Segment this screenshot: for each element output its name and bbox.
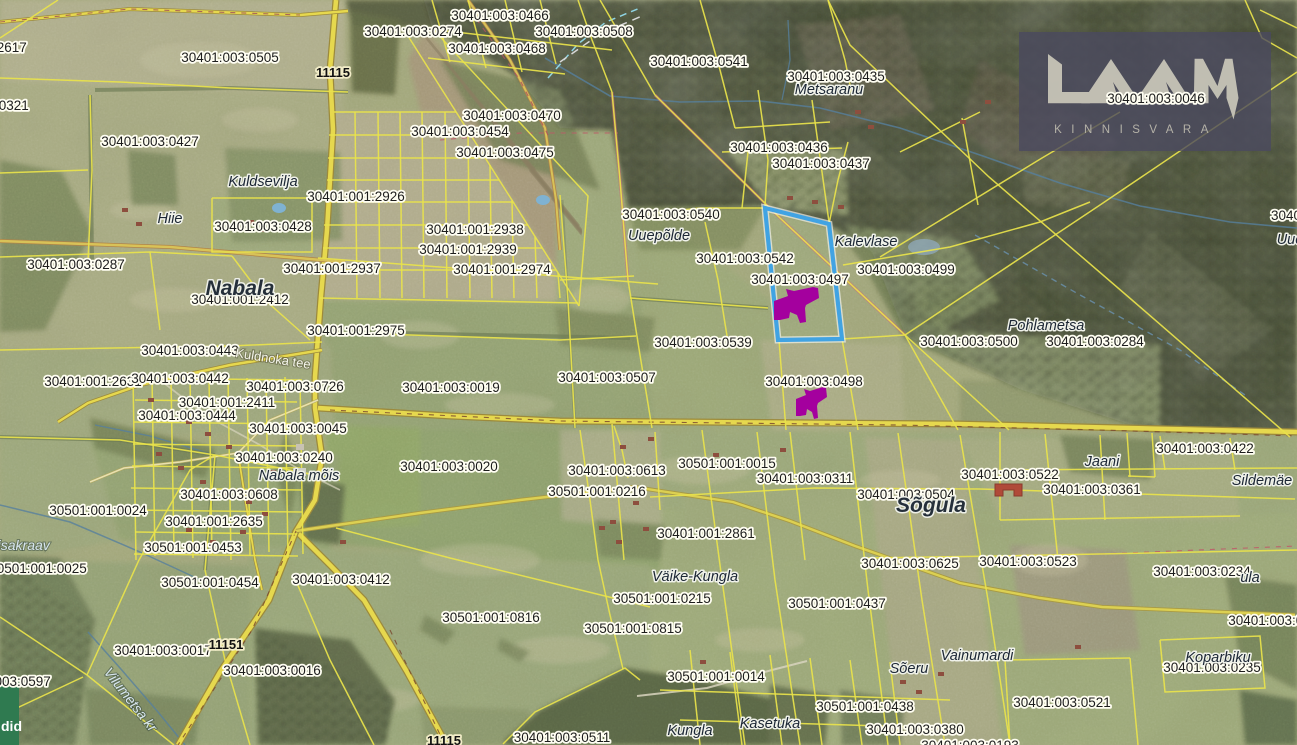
- svg-text:Hiie: Hiie: [158, 211, 183, 227]
- svg-text:30501:001:0815: 30501:001:0815: [584, 621, 682, 636]
- svg-text:30401:001:2617: 30401:001:2617: [0, 40, 27, 55]
- svg-text:30401:003:0019: 30401:003:0019: [402, 380, 500, 395]
- svg-text:30401:003:0597: 30401:003:0597: [0, 674, 51, 689]
- svg-text:30501:001:0014: 30501:001:0014: [667, 669, 765, 684]
- svg-text:30401:003:0380: 30401:003:0380: [866, 722, 964, 737]
- svg-text:Jaani: Jaani: [1084, 454, 1120, 470]
- svg-text:Vainumardi: Vainumardi: [941, 648, 1015, 664]
- svg-text:30401:003:0498: 30401:003:0498: [765, 374, 863, 389]
- svg-text:Kalevlase: Kalevlase: [835, 234, 898, 250]
- svg-text:30401:003:0236: 30401:003:0236: [1228, 613, 1297, 628]
- svg-text:3040: 3040: [1271, 208, 1297, 223]
- svg-text:30501:001:0216: 30501:001:0216: [548, 484, 646, 499]
- svg-text:30401:003:0017: 30401:003:0017: [114, 643, 212, 658]
- svg-text:Metsaranu: Metsaranu: [795, 82, 864, 98]
- svg-text:Uuepõlde: Uuepõlde: [628, 228, 690, 244]
- svg-text:30401:003:0311: 30401:003:0311: [757, 471, 854, 486]
- svg-text:Sõeru: Sõeru: [890, 661, 929, 677]
- svg-text:Kuldsevilja: Kuldsevilja: [228, 174, 297, 190]
- svg-text:30401:003:0284: 30401:003:0284: [1046, 334, 1144, 349]
- svg-text:30401:001:2938: 30401:001:2938: [426, 222, 524, 237]
- svg-text:KINNISVARA: KINNISVARA: [1054, 124, 1218, 136]
- svg-text:30401:003:0542: 30401:003:0542: [696, 251, 794, 266]
- svg-text:30401:003:0521: 30401:003:0521: [1013, 695, 1111, 710]
- svg-text:30401:003:0443: 30401:003:0443: [141, 343, 239, 358]
- svg-text:30401:003:0541: 30401:003:0541: [650, 54, 748, 69]
- svg-text:30401:003:0522: 30401:003:0522: [961, 467, 1059, 482]
- svg-text:Väike-Kungla: Väike-Kungla: [652, 569, 738, 585]
- svg-text:30401:003:0436: 30401:003:0436: [730, 140, 828, 155]
- svg-text:30401:003:0625: 30401:003:0625: [861, 556, 959, 571]
- svg-text:ula: ula: [1240, 570, 1259, 586]
- svg-text:Kungla: Kungla: [667, 723, 712, 739]
- svg-text:11115: 11115: [316, 65, 350, 80]
- svg-text:30401:003:0608: 30401:003:0608: [180, 487, 278, 502]
- svg-text:30401:003:0045: 30401:003:0045: [249, 421, 347, 436]
- svg-text:30401:003:0428: 30401:003:0428: [214, 219, 312, 234]
- svg-text:30401:003:0016: 30401:003:0016: [223, 663, 321, 678]
- svg-text:11115: 11115: [427, 733, 461, 745]
- svg-text:30501:001:0437: 30501:001:0437: [788, 596, 886, 611]
- svg-text:Uue: Uue: [1277, 232, 1297, 248]
- svg-text:30401:003:0274: 30401:003:0274: [364, 24, 462, 39]
- svg-text:30501:001:0215: 30501:001:0215: [613, 591, 711, 606]
- svg-text:30401:003:0020: 30401:003:0020: [400, 459, 498, 474]
- svg-text:30401:003:0427: 30401:003:0427: [101, 134, 199, 149]
- svg-text:30401:003:0540: 30401:003:0540: [622, 207, 720, 222]
- svg-text:30401:003:0442: 30401:003:0442: [131, 371, 229, 386]
- svg-text:30401:003:0539: 30401:003:0539: [654, 335, 752, 350]
- svg-text:30501:001:0025: 30501:001:0025: [0, 561, 87, 576]
- svg-text:30401:003:0412: 30401:003:0412: [292, 572, 390, 587]
- svg-text:30401:003:0726: 30401:003:0726: [246, 379, 344, 394]
- svg-text:30401:003:0454: 30401:003:0454: [411, 124, 509, 139]
- svg-text:30401:003:0508: 30401:003:0508: [535, 24, 633, 39]
- svg-text:Nabala mõis: Nabala mõis: [259, 468, 340, 484]
- svg-text:Sildemäe: Sildemäe: [1232, 473, 1292, 489]
- svg-text:30501:001:0024: 30501:001:0024: [49, 503, 147, 518]
- svg-text:30401:001:2861: 30401:001:2861: [657, 526, 755, 541]
- svg-text:30501:001:0015: 30501:001:0015: [678, 456, 776, 471]
- svg-text:30401:003:0321: 30401:003:0321: [0, 98, 29, 113]
- svg-text:30401:001:2974: 30401:001:2974: [453, 262, 551, 277]
- svg-text:30401:003:0234: 30401:003:0234: [1153, 564, 1251, 579]
- svg-text:30401:003:0361: 30401:003:0361: [1043, 482, 1141, 497]
- svg-text:30401:003:0613: 30401:003:0613: [568, 463, 666, 478]
- svg-text:30501:001:0454: 30501:001:0454: [161, 575, 259, 590]
- svg-text:30401:001:2939: 30401:001:2939: [419, 242, 517, 257]
- svg-text:Kasetuka: Kasetuka: [740, 716, 800, 732]
- svg-text:30401:001:2975: 30401:001:2975: [307, 323, 405, 338]
- svg-text:30401:003:0505: 30401:003:0505: [181, 50, 279, 65]
- svg-text:Koparbiku: Koparbiku: [1185, 650, 1250, 666]
- svg-text:30401:003:0422: 30401:003:0422: [1156, 441, 1254, 456]
- svg-text:11151: 11151: [209, 637, 244, 652]
- svg-text:30401:003:0437: 30401:003:0437: [772, 156, 870, 171]
- svg-text:30401:003:0287: 30401:003:0287: [27, 257, 125, 272]
- svg-text:did: did: [1, 718, 22, 734]
- svg-text:Mõisakraav: Mõisakraav: [0, 537, 51, 553]
- svg-text:30401:003:0468: 30401:003:0468: [448, 41, 546, 56]
- svg-text:30401:003:0500: 30401:003:0500: [920, 334, 1018, 349]
- svg-text:30401:003:0470: 30401:003:0470: [463, 108, 561, 123]
- svg-text:30401:003:0507: 30401:003:0507: [558, 370, 656, 385]
- svg-text:30501:001:0816: 30501:001:0816: [442, 610, 540, 625]
- svg-text:30401:003:0523: 30401:003:0523: [979, 554, 1077, 569]
- svg-text:30401:003:0497: 30401:003:0497: [751, 272, 849, 287]
- svg-text:30401:003:0444: 30401:003:0444: [138, 408, 236, 423]
- svg-text:30401:001:2635: 30401:001:2635: [165, 514, 263, 529]
- svg-text:30401:003:0193: 30401:003:0193: [921, 738, 1019, 745]
- svg-text:30401:001:2926: 30401:001:2926: [307, 189, 405, 204]
- svg-text:30401:003:0466: 30401:003:0466: [451, 8, 549, 23]
- svg-text:30401:003:0046: 30401:003:0046: [1107, 91, 1205, 106]
- svg-text:Pohlametsa: Pohlametsa: [1008, 318, 1085, 334]
- svg-text:30401:003:0511: 30401:003:0511: [514, 730, 611, 745]
- svg-text:30401:001:2937: 30401:001:2937: [283, 261, 381, 276]
- svg-text:30401:001:2631: 30401:001:2631: [44, 374, 142, 389]
- svg-text:Sõgula: Sõgula: [896, 494, 966, 517]
- svg-text:30401:003:0475: 30401:003:0475: [456, 145, 554, 160]
- svg-text:30401:003:0240: 30401:003:0240: [235, 450, 333, 465]
- svg-text:30401:003:0499: 30401:003:0499: [857, 262, 955, 277]
- svg-text:Nabala: Nabala: [206, 277, 275, 300]
- svg-text:30501:001:0453: 30501:001:0453: [144, 540, 242, 555]
- svg-text:30501:001:0438: 30501:001:0438: [816, 699, 914, 714]
